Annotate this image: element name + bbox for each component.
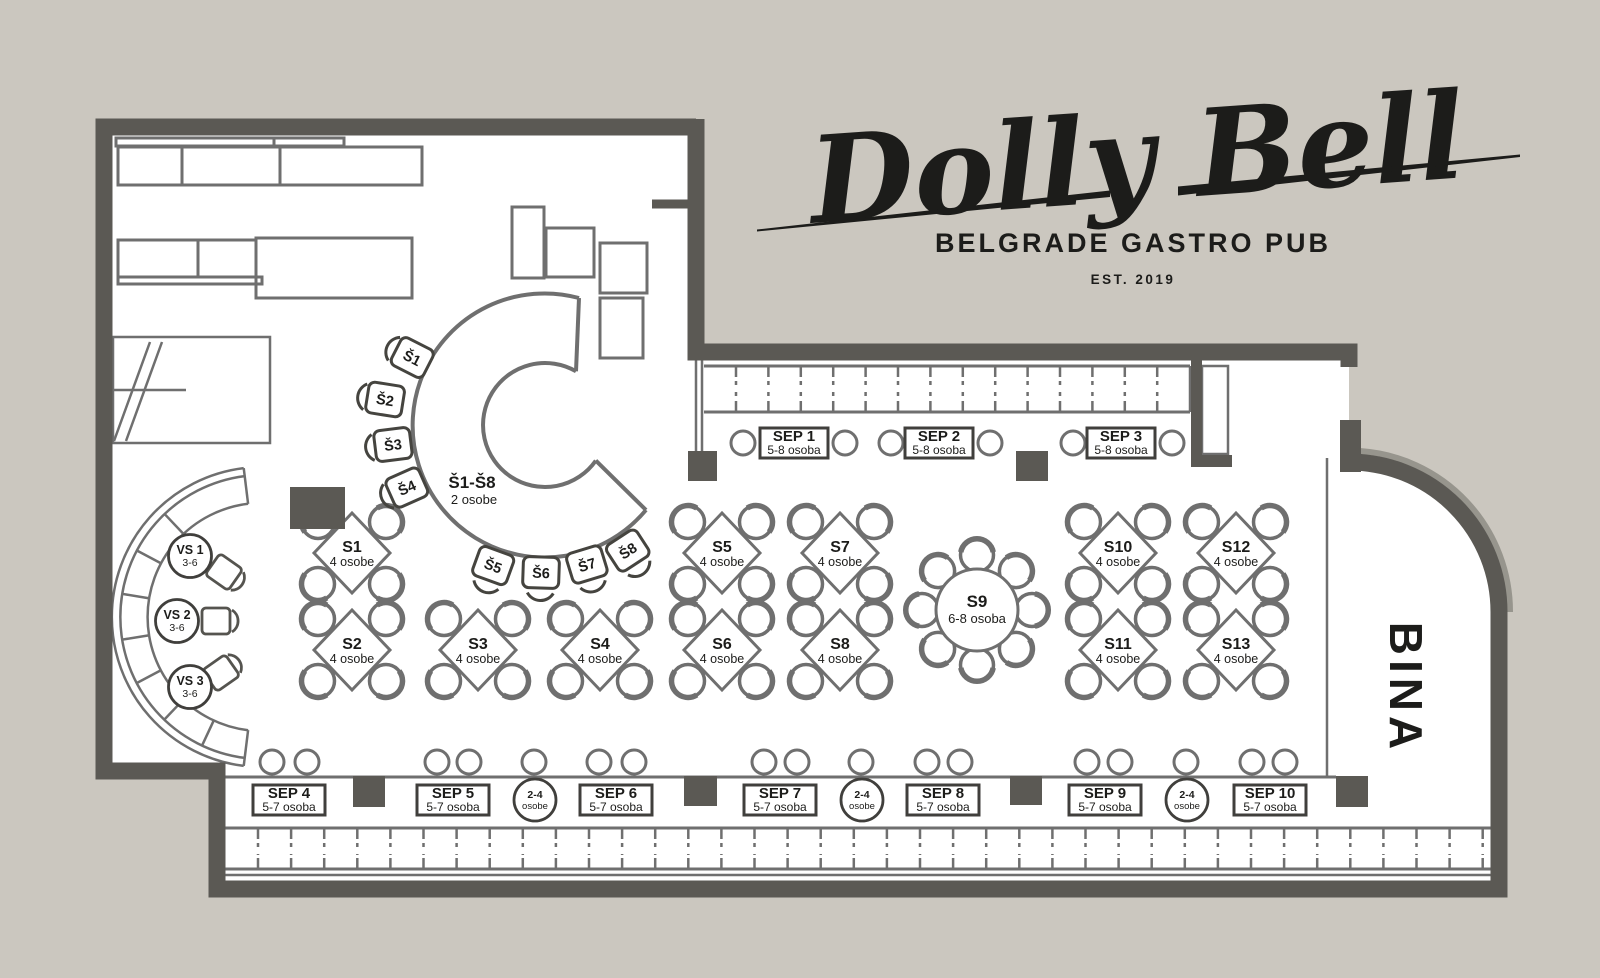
table-capacity: 3-6 — [182, 557, 197, 569]
table-capacity: 4 osobe — [578, 652, 623, 666]
table-id: S5 — [712, 539, 732, 556]
chair — [978, 431, 1002, 455]
brand-subtitle: BELGRADE GASTRO PUB — [935, 228, 1331, 258]
table-capacity: 2-4 — [1179, 789, 1194, 801]
stool-label: Š3 — [383, 435, 403, 455]
table-id: S7 — [830, 539, 850, 556]
table-capacity: 4 osobe — [1214, 555, 1259, 569]
table-capacity: 4 osobe — [1096, 652, 1141, 666]
stage-label: BINA — [1380, 622, 1432, 754]
chair — [752, 750, 776, 774]
pillar — [1016, 451, 1048, 481]
chair — [260, 750, 284, 774]
pillar — [1010, 776, 1042, 805]
pillar — [353, 776, 385, 807]
chair — [731, 431, 755, 455]
chair — [1273, 750, 1297, 774]
table-id: S3 — [468, 636, 488, 653]
floor-plan: S14 osobeS24 osobeS34 osobeS44 osobeS54 … — [0, 0, 1600, 978]
table-id: S1 — [342, 539, 362, 556]
booth-sep-2[interactable]: SEP 25-8 osoba — [879, 428, 1002, 458]
brand-title: Dolly Bell — [802, 65, 1469, 252]
bar-label: Š1-Š8 — [448, 473, 495, 492]
table-capacity: 4 osobe — [700, 652, 745, 666]
booth-capacity: 5-7 osoba — [426, 800, 480, 814]
table-capacity: 2-4 — [854, 789, 869, 801]
table-capacity: 4 osobe — [1096, 555, 1141, 569]
chair — [622, 750, 646, 774]
table-capacity: 4 osobe — [818, 555, 863, 569]
chair — [587, 750, 611, 774]
chair — [849, 750, 873, 774]
chair — [425, 750, 449, 774]
booth-capacity: 5-7 osoba — [589, 800, 643, 814]
partition-wall — [1191, 359, 1202, 467]
table-id: VS 2 — [163, 608, 190, 622]
table-capacity: 6-8 osoba — [948, 611, 1007, 626]
stool-label: Š6 — [532, 564, 550, 583]
booth-capacity: 5-7 osoba — [1078, 800, 1132, 814]
table-id: VS 3 — [176, 674, 203, 688]
booth-capacity: 5-7 osoba — [753, 800, 807, 814]
chair — [915, 750, 939, 774]
booth-sep-1[interactable]: SEP 15-8 osoba — [731, 428, 857, 458]
bar-capacity: 2 osobe — [451, 492, 497, 507]
booth-capacity: 5-8 osoba — [767, 443, 821, 457]
booth-capacity: 5-8 osoba — [1094, 443, 1148, 457]
booth-capacity: 5-8 osoba — [912, 443, 966, 457]
chair — [522, 750, 546, 774]
chair — [1160, 431, 1184, 455]
table-id: VS 1 — [176, 543, 203, 557]
floor-plan-canvas: S14 osobeS24 osobeS34 osobeS44 osobeS54 … — [0, 0, 1600, 978]
chair — [948, 750, 972, 774]
table-capacity: 3-6 — [182, 688, 197, 700]
table-id: S10 — [1104, 539, 1133, 556]
brand-logo: Dolly Bell BELGRADE GASTRO PUB EST. 2019 — [757, 65, 1520, 287]
table-capacity: 4 osobe — [330, 555, 375, 569]
pillar — [290, 487, 345, 529]
chair — [457, 750, 481, 774]
chair — [1061, 431, 1085, 455]
chair — [1108, 750, 1132, 774]
table-id: S6 — [712, 636, 732, 653]
table-capacity: 3-6 — [169, 622, 184, 634]
table-capacity: 4 osobe — [456, 652, 501, 666]
table-capacity: 4 osobe — [818, 652, 863, 666]
booth-capacity: 5-7 osoba — [916, 800, 970, 814]
table-capacity: 4 osobe — [700, 555, 745, 569]
chair — [1240, 750, 1264, 774]
chair — [1174, 750, 1198, 774]
pillar — [688, 451, 717, 481]
table-capacity: 4 osobe — [1214, 652, 1259, 666]
chair — [833, 431, 857, 455]
chair — [295, 750, 319, 774]
chair — [879, 431, 903, 455]
table-capacity: 4 osobe — [330, 652, 375, 666]
table-id: S4 — [590, 636, 610, 653]
table-id: S11 — [1104, 636, 1132, 653]
chair — [1075, 750, 1099, 774]
table-capacity: 2-4 — [527, 789, 542, 801]
table-id: S13 — [1222, 636, 1251, 653]
pillar — [1336, 776, 1368, 807]
table-id: S12 — [1222, 539, 1251, 556]
table-id: S8 — [830, 636, 850, 653]
table-id: S2 — [342, 636, 362, 653]
table-id: S9 — [967, 592, 988, 611]
service-station — [1202, 366, 1228, 454]
pillar — [684, 776, 717, 806]
table-capacity: osobe — [1174, 801, 1200, 812]
booth-sep-3[interactable]: SEP 35-8 osoba — [1061, 428, 1184, 458]
booth-capacity: 5-7 osoba — [1243, 800, 1297, 814]
bar-zone-label: Š1-Š82 osobe — [448, 473, 497, 507]
chair — [785, 750, 809, 774]
table-capacity: osobe — [849, 801, 875, 812]
brand-established: EST. 2019 — [1091, 272, 1176, 287]
booth-capacity: 5-7 osoba — [262, 800, 316, 814]
table-capacity: osobe — [522, 801, 548, 812]
